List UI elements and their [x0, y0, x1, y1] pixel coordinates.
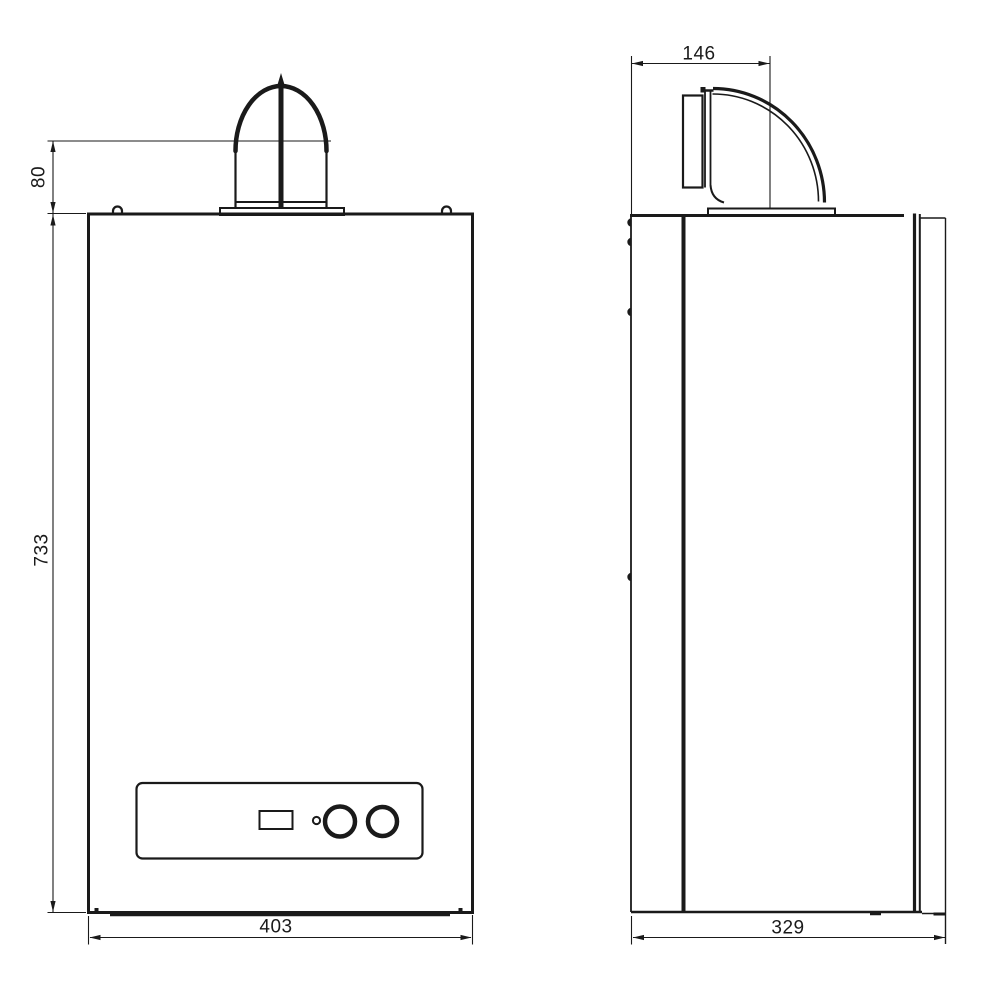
- knob-right: [368, 807, 397, 836]
- dimension-label-flue-collar-height: 80: [30, 166, 49, 188]
- flue-collar: [220, 73, 344, 215]
- side-view: [627, 87, 945, 944]
- front-cabinet-outline: [89, 214, 473, 913]
- elbow-outlet: [683, 96, 703, 188]
- flue-rod-tip: [277, 73, 286, 88]
- flue-elbow: [683, 87, 835, 215]
- control-panel: [137, 783, 423, 859]
- elbow-base-flange: [708, 209, 835, 216]
- dimension-lines: [48, 56, 946, 945]
- led-indicator: [313, 817, 320, 824]
- front-view: [89, 73, 473, 914]
- dimension-label-body-height: 733: [33, 533, 52, 566]
- display-window: [260, 811, 293, 829]
- dimension-label-body-width: 403: [259, 918, 292, 937]
- dimension-label-flue-offset: 146: [682, 45, 715, 64]
- knob-left: [325, 807, 355, 837]
- technical-drawing-page: 80 733 403 146 329: [0, 0, 1000, 1000]
- elbow-inner-arc: [713, 94, 819, 202]
- elbow-bend-inner: [711, 185, 725, 203]
- elbow-outer-arc: [713, 89, 825, 203]
- technical-drawing-canvas: [0, 0, 1000, 1000]
- dimension-label-body-depth: 329: [771, 919, 804, 938]
- control-panel-outline: [137, 783, 423, 859]
